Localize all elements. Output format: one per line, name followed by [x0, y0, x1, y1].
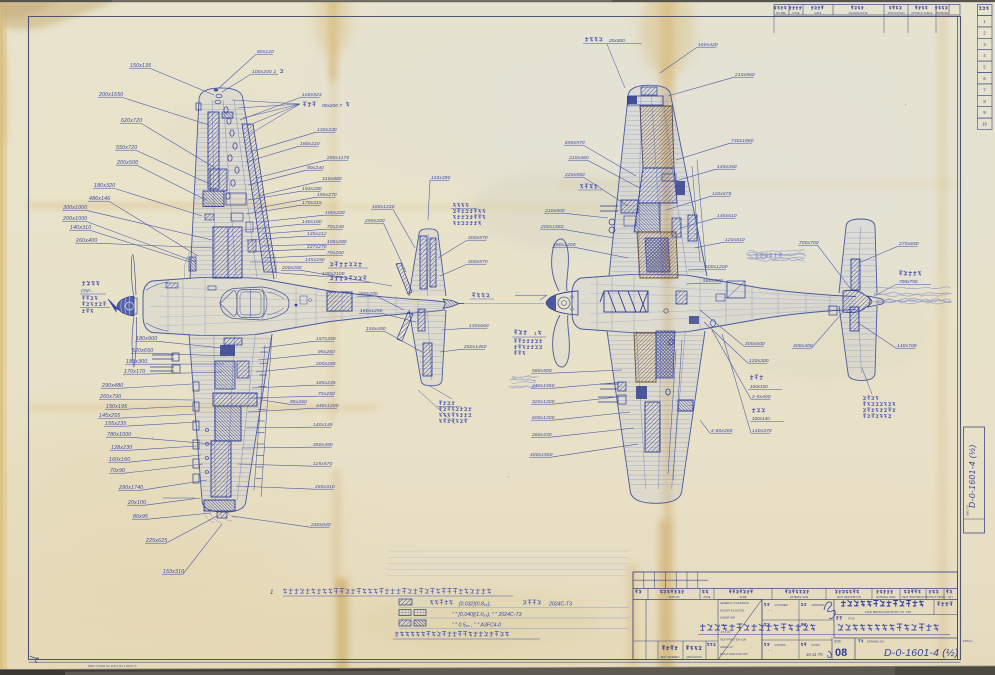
- svg-text:″ ″ 0.5ₓₓ , ″: ″ ″ 0.5ₓₓ , ″ ″ A3FC4-0: [452, 623, 501, 629]
- svg-text:20x300: 20x300: [608, 38, 625, 44]
- svg-text:ANGLE ±1°: ANGLE ±1°: [720, 645, 733, 649]
- svg-text:DATE: DATE: [815, 11, 822, 15]
- svg-text:APPLICATION: APPLICATION: [686, 656, 702, 659]
- svg-text:ZONE: ZONE: [792, 11, 799, 15]
- svg-text:DFTMN & CHECK: DFTMN & CHECK: [911, 11, 933, 15]
- svg-text:INCH FRACTION ±1/8: INCH FRACTION ±1/8: [720, 638, 747, 642]
- svg-text:1: 1: [534, 331, 537, 337]
- svg-text:SIZE: SIZE: [834, 640, 841, 644]
- svg-text:″ ″ [0.040](1.0ₓₓ), ″: ″ ″ [0.040](1.0ₓₓ), ″ ″ 2024C-T3: [452, 612, 522, 618]
- svg-text:EXCEPT AS NOTED: EXCEPT AS NOTED: [720, 608, 744, 612]
- svg-text:CUSTOMER: CUSTOMER: [775, 605, 788, 607]
- svg-text:NAME: NAME: [739, 596, 747, 599]
- svg-text:00x200 7: 00x200 7: [322, 103, 342, 109]
- svg-text:GENERAL TOLERANCE: GENERAL TOLERANCE: [720, 601, 749, 605]
- svg-text:[0.032](0.8ₓₓ),: [0.032](0.8ₓₓ),: [458, 602, 491, 608]
- svg-text:QTY: QTY: [948, 596, 953, 599]
- svg-text:HEAT TREATMENT: HEAT TREATMENT: [902, 596, 925, 599]
- svg-text:SHIN MEIWA INDUSTRY CO. LTD: SHIN MEIWA INDUSTRY CO. LTD: [865, 610, 912, 614]
- svg-text:CONTROL: CONTROL: [775, 645, 787, 647]
- svg-text:DRAWING NO: DRAWING NO: [867, 640, 884, 644]
- svg-text:NEXT ASSEMBLY: NEXT ASSEMBLY: [660, 656, 680, 659]
- svg-text:D-0-1601-4 (½): D-0-1601-4 (½): [967, 444, 977, 508]
- svg-text:SMIC FORM No.158-1 R1 1.88 5: SMIC FORM No.158-1 R1 1.88 57-5: [88, 664, 137, 668]
- svg-text:E78mm: E78mm: [963, 639, 973, 643]
- svg-text:ZONE: ZONE: [704, 596, 711, 599]
- svg-text:APPROVED: APPROVED: [812, 604, 825, 607]
- svg-text:· ·: · ·: [768, 648, 773, 654]
- svg-text:APPROVE: APPROVE: [936, 11, 949, 15]
- svg-text:CHANGE NOTE: CHANGE NOTE: [848, 11, 867, 15]
- svg-text:MACH. ANGULAR ±1/2°: MACH. ANGULAR ±1/2°: [720, 652, 748, 656]
- svg-text:PART NO: PART NO: [669, 596, 680, 599]
- svg-text:DFTMN: DFTMN: [812, 645, 820, 647]
- svg-text:18·11·79: 18·11·79: [806, 652, 823, 657]
- svg-text:700x750: 700x750: [899, 279, 918, 285]
- svg-text:· ·: · ·: [768, 608, 773, 614]
- svg-text:2024C-T3: 2024C-T3: [548, 602, 572, 608]
- svg-text:TITLE: TITLE: [848, 618, 855, 621]
- svg-text:D-0-1601-4 (½): D-0-1601-4 (½): [884, 647, 959, 659]
- svg-text:APPLICATION: APPLICATION: [888, 11, 905, 15]
- svg-text:DWG NO: DWG NO: [966, 505, 970, 516]
- svg-text:LINEAR DIM: LINEAR DIM: [720, 616, 735, 620]
- svg-text:.XX ±.03: .XX ±.03: [720, 630, 730, 634]
- svg-text:MATERIAL SIZE: MATERIAL SIZE: [790, 596, 809, 599]
- svg-text:PROTECT FINISH: PROTECT FINISH: [925, 596, 946, 599]
- svg-text:100x150: 100x150: [750, 384, 768, 389]
- svg-text:08: 08: [835, 647, 847, 659]
- svg-text:100x140: 100x140: [752, 416, 770, 421]
- svg-text:MATERIAL SPEC: MATERIAL SPEC: [876, 596, 896, 599]
- svg-text:FRP···: FRP···: [81, 289, 95, 294]
- svg-text:MATL DESCRIPTION: MATL DESCRIPTION: [837, 596, 861, 599]
- svg-text:NO.REF: NO.REF: [776, 11, 786, 15]
- svg-text:10: 10: [982, 122, 987, 127]
- svg-text:1: 1: [270, 590, 273, 596]
